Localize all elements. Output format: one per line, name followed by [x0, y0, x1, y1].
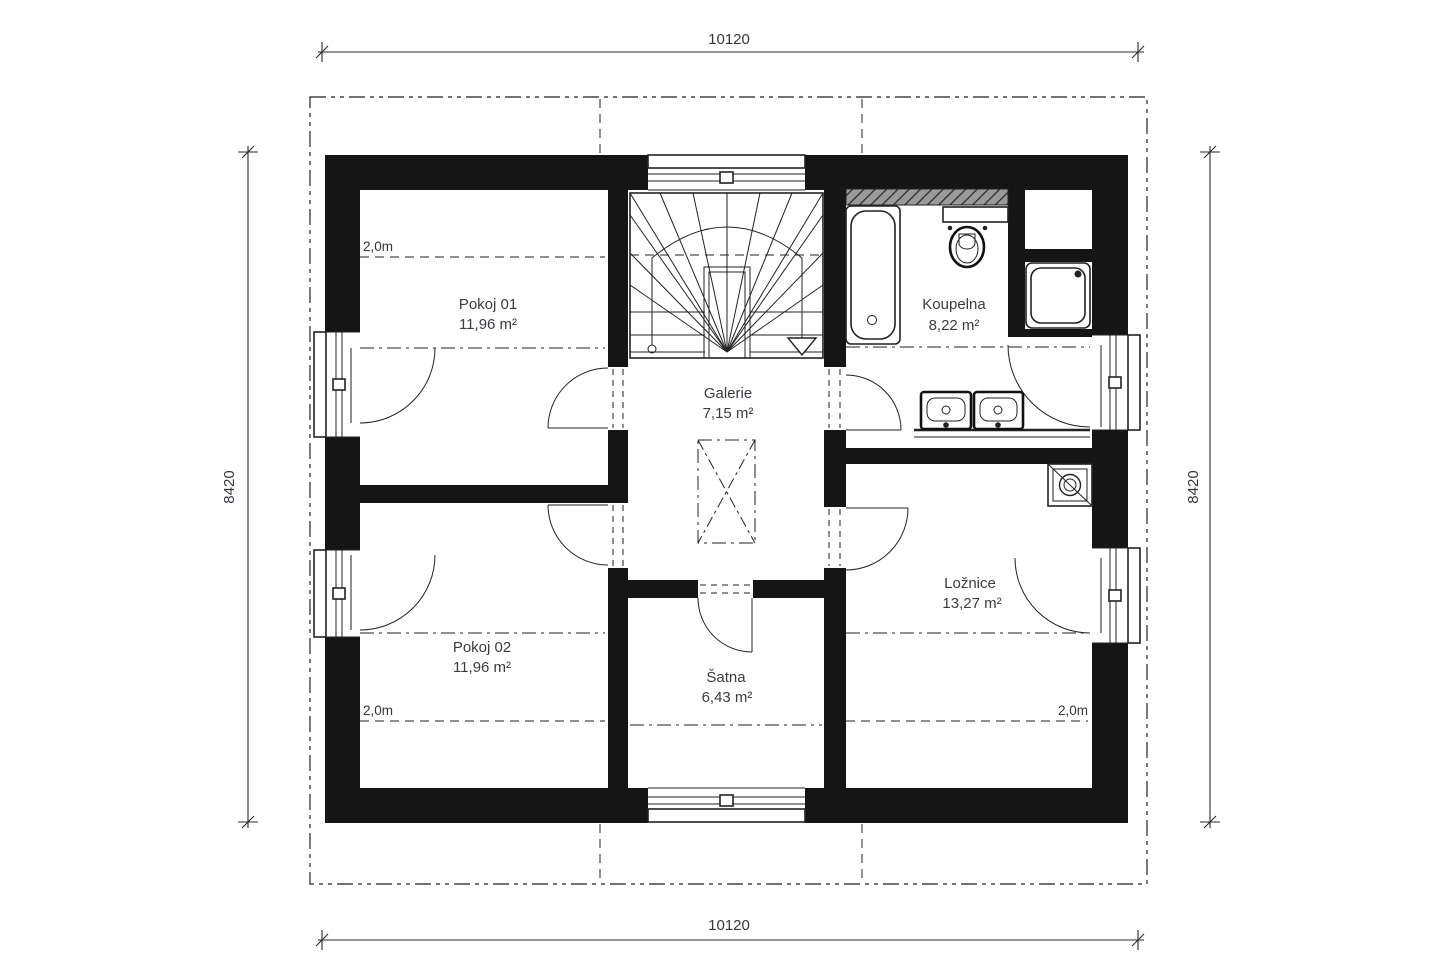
room-area-koupelna: 8,22 m² [929, 317, 980, 334]
room-area-pokoj01: 11,96 m² [459, 316, 517, 333]
door-swing-arc [548, 505, 608, 565]
installation-wall-hatch [846, 189, 1008, 205]
room-area-galerie: 7,15 m² [703, 405, 754, 422]
dimension-top-label: 10120 [708, 31, 750, 48]
door-swing-arc [846, 508, 908, 570]
door-swing-arc [548, 368, 608, 428]
room-label-pokoj01: Pokoj 01 [459, 296, 517, 313]
staircase [630, 193, 823, 358]
dimension-right: 8420 [1185, 146, 1220, 828]
window-left-pokoj02 [314, 550, 435, 637]
room-label-satna: Šatna [706, 669, 746, 686]
window-right-koupelna [1008, 335, 1140, 430]
dimension-bottom: 10120 [316, 917, 1144, 950]
gallery-void-opening [698, 440, 755, 543]
washbasin-counter [914, 430, 1090, 437]
window-swing-arc [1015, 558, 1090, 633]
room-label-loznice: Ložnice [944, 575, 996, 592]
washbasin-1 [921, 392, 971, 429]
dimension-right-label: 8420 [1185, 470, 1202, 503]
door-koupelna [829, 369, 901, 430]
door-swing-arc [846, 375, 901, 430]
bathtub [846, 206, 900, 344]
dimension-left-label: 8420 [221, 470, 238, 503]
window-swing-arc [360, 555, 435, 630]
room-label-koupelna: Koupelna [922, 296, 986, 313]
window-bottom-satna [648, 788, 805, 822]
room-area-satna: 6,43 m² [702, 689, 753, 706]
window-right-loznice [1015, 548, 1140, 643]
dimension-left: 8420 [221, 146, 258, 828]
door-pokoj01 [548, 368, 623, 428]
room-area-pokoj02: 11,96 m² [453, 659, 511, 676]
height-label-pokoj01: 2,0m [363, 239, 393, 254]
bathroom-fixtures [846, 189, 1090, 437]
dimension-bottom-label: 10120 [708, 917, 750, 934]
washbasin-2 [974, 392, 1023, 429]
door-swing-arc [698, 598, 752, 652]
door-loznice [829, 508, 908, 570]
height-label-pokoj02: 2,0m [363, 703, 393, 718]
room-label-pokoj02: Pokoj 02 [453, 639, 511, 656]
room-area-loznice: 13,27 m² [942, 595, 1001, 612]
floor-plan-canvas: 10120 10120 8420 8420 [0, 0, 1455, 970]
chimney [1048, 464, 1092, 506]
toilet [943, 207, 1008, 267]
dimension-top: 10120 [316, 31, 1144, 62]
window-swing-arc [360, 348, 435, 423]
door-pokoj02 [548, 505, 623, 566]
shower-tray [1026, 263, 1090, 328]
floor-plan-page: 10120 10120 8420 8420 [0, 0, 1455, 970]
window-top-stair [648, 155, 805, 190]
door-satna [698, 585, 752, 652]
room-label-galerie: Galerie [704, 385, 752, 402]
height-label-loznice: 2,0m [1058, 703, 1088, 718]
